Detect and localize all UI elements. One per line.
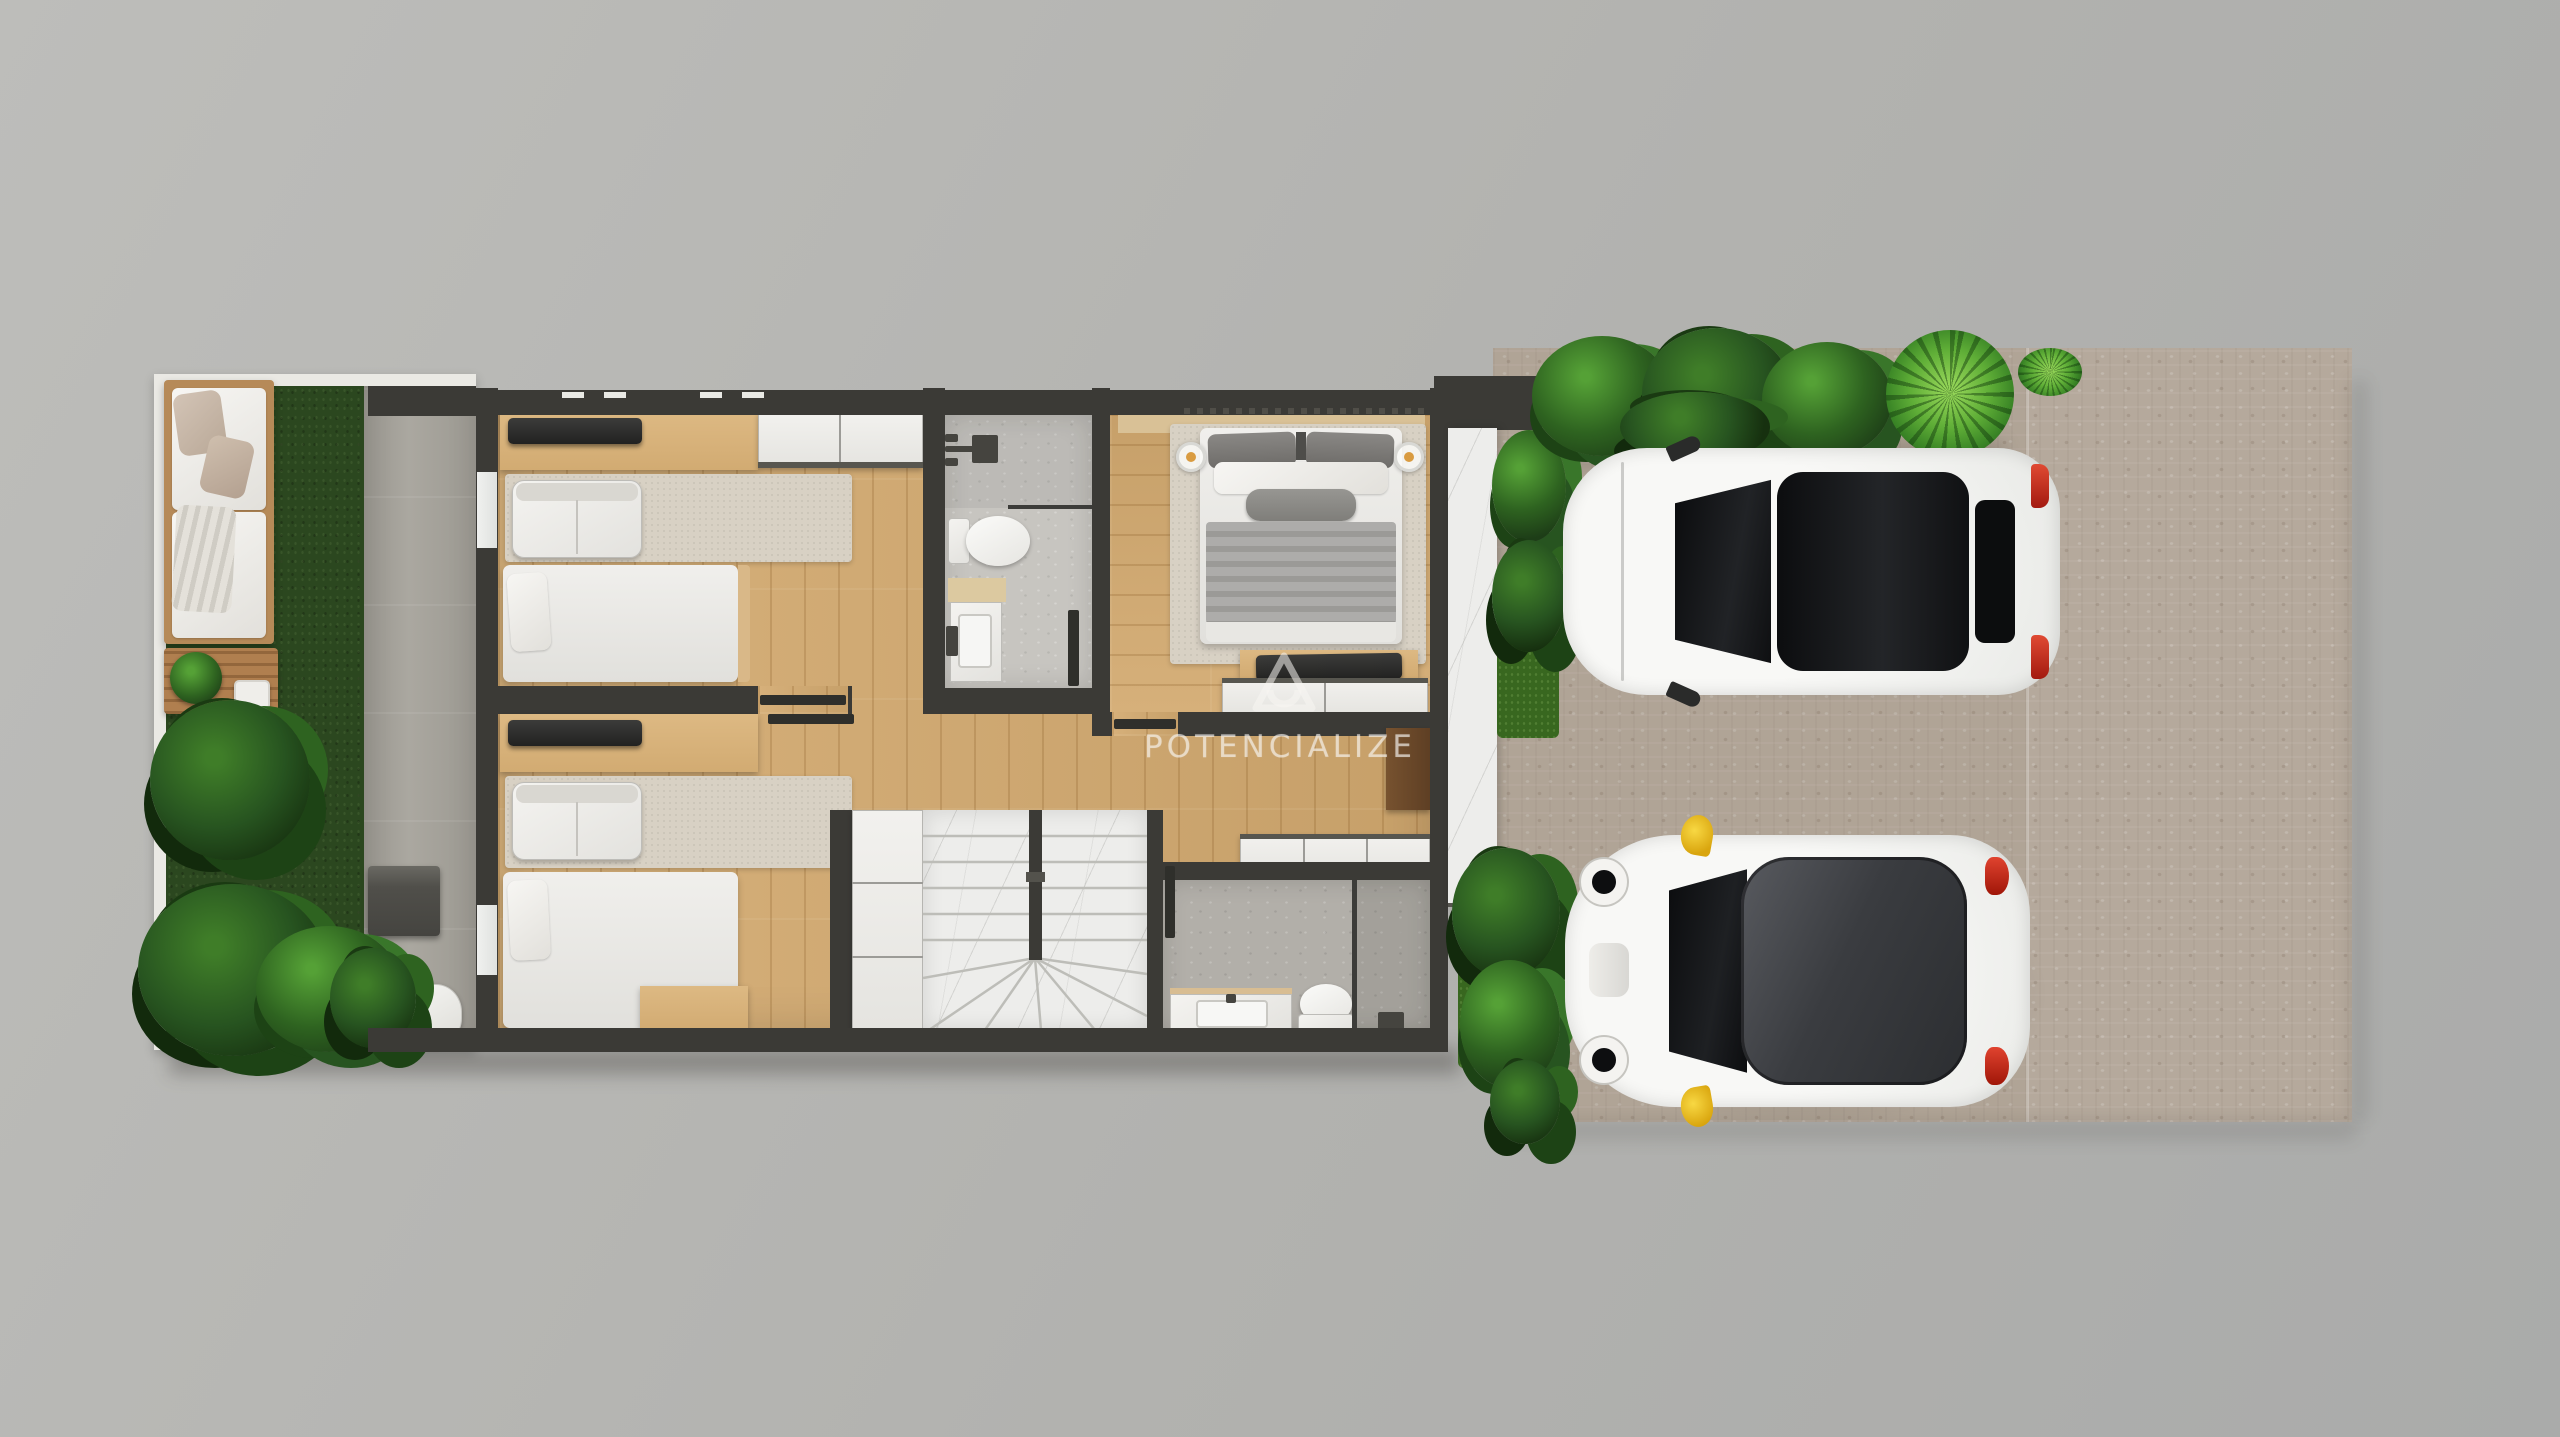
car1-windshield-glass <box>1675 474 1771 669</box>
utility-bin <box>368 866 440 936</box>
bedroom1-bed-pillow <box>506 572 551 653</box>
top-wall-window-tick <box>742 392 764 398</box>
vanity1-basin <box>958 614 992 668</box>
bedroom2-corner-desk <box>640 986 748 1030</box>
stair-treads <box>923 810 1147 1030</box>
car-mini <box>1565 835 2030 1107</box>
bedroom2-window <box>477 905 497 975</box>
bedroom2-bed-pillow <box>507 879 551 961</box>
watermark-logo <box>1252 652 1316 714</box>
vanity2-basin <box>1196 1000 1268 1028</box>
master-bolster <box>1246 489 1356 521</box>
car1-taillight <box>2031 464 2049 508</box>
bedroom1-tv <box>508 418 642 444</box>
floor-plan-render: POTENCIALIZE <box>0 0 2560 1437</box>
sideboard-edge <box>1240 834 1430 839</box>
car2-headlight <box>1581 859 1627 905</box>
hedge-tuft <box>2018 348 2082 396</box>
master-drape-center <box>1296 432 1306 460</box>
bedroom1-door <box>760 695 846 705</box>
loveseat-split <box>576 500 578 554</box>
garden-plants <box>150 700 310 860</box>
car1-roof-glass <box>1777 472 1969 671</box>
top-wall-jut <box>1434 376 1542 430</box>
car-hatchback <box>1563 448 2060 695</box>
car2-roof <box>1741 857 1967 1085</box>
loveseat-back <box>516 785 638 803</box>
shower1-glass <box>1008 505 1092 509</box>
vanity1-backsplash <box>948 578 1006 602</box>
car2-taillight <box>1985 857 2009 895</box>
shower1-head <box>972 435 998 463</box>
top-wall-window-tick <box>700 392 722 398</box>
bedroom1-bed-frame <box>738 565 750 682</box>
closet-edge <box>758 462 923 468</box>
garden-concrete-path <box>364 386 476 1038</box>
shower1-zone <box>945 415 1092 508</box>
driveway-bottom-shadow <box>1510 1122 2355 1138</box>
bathroom2-door <box>1165 866 1175 938</box>
hedge-palm <box>1886 330 2014 458</box>
closet-divider <box>852 956 923 958</box>
master-bed-foot <box>1206 622 1396 642</box>
stairs-right-wall <box>1147 810 1163 1030</box>
sofa-blanket <box>171 505 236 614</box>
driveway-edge-shadow <box>2352 380 2366 1120</box>
bathroom1-bottom-wall <box>923 688 1110 714</box>
bathroom1-door <box>1068 610 1079 686</box>
curtain-rail-dashes <box>1184 408 1424 414</box>
path-lintel-wall <box>368 386 476 416</box>
stair-closet <box>852 810 923 1030</box>
top-wall-window-tick <box>562 392 584 398</box>
shower1-knob <box>945 434 958 442</box>
drawer-divider <box>1324 678 1326 716</box>
car2-hood-handle <box>1589 943 1629 997</box>
bedroom2-tv <box>508 720 642 746</box>
car2-windshield-glass <box>1669 865 1747 1077</box>
car1-hood-seam <box>1621 462 1624 681</box>
entry-walkway <box>1448 428 1497 907</box>
toilet1-bowl <box>966 516 1030 566</box>
pendant-bulb <box>1186 452 1196 462</box>
top-wall-window-tick <box>604 392 626 398</box>
car2-taillight <box>1985 1047 2009 1085</box>
bathroom2-top-wall <box>1147 862 1448 880</box>
closet-divider <box>839 412 841 468</box>
shower2-zone <box>1356 880 1430 1030</box>
car2-headlight <box>1581 1037 1627 1083</box>
car1-rear-window <box>1975 500 2015 643</box>
staircase <box>923 810 1147 1030</box>
bedroom1-window <box>477 472 497 548</box>
right-wall <box>1430 388 1448 1052</box>
entry-side-plants <box>1452 848 1560 978</box>
watermark-text: POTENCIALIZE <box>1120 728 1440 766</box>
bathroom1-left-wall <box>923 388 945 700</box>
loveseat-split <box>576 802 578 856</box>
shower1-knob <box>945 458 958 466</box>
pendant-bulb <box>1404 452 1414 462</box>
bathroom1-right-wall <box>1092 388 1110 714</box>
vanity1-faucet <box>946 626 958 656</box>
bedroom2-right-wall <box>830 810 852 1030</box>
loveseat-back <box>516 483 638 501</box>
shower2-partition <box>1352 880 1357 1030</box>
hedge-bush <box>1762 342 1892 457</box>
car1-taillight <box>2031 635 2049 679</box>
bedroom2-door <box>768 714 854 724</box>
bottom-wall <box>368 1028 1448 1052</box>
closet-divider <box>852 882 923 884</box>
vanity2-faucet <box>1226 994 1236 1003</box>
master-blanket <box>1206 522 1396 624</box>
potted-plant <box>170 652 222 704</box>
